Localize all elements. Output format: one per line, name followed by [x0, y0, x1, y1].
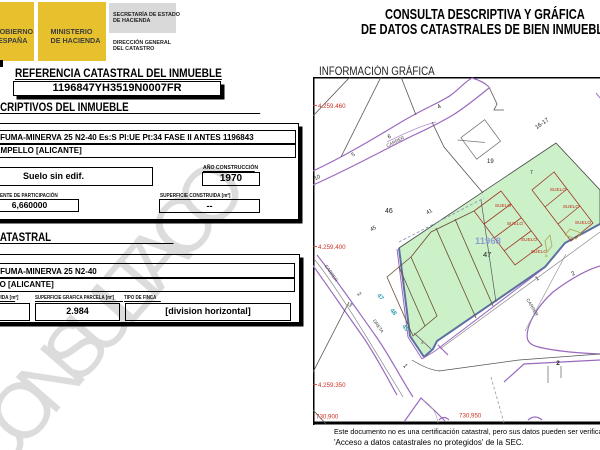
svg-text:47: 47 [483, 250, 491, 259]
svg-text:4.259.350: 4.259.350 [318, 382, 346, 389]
svg-text:730,950: 730,950 [459, 413, 482, 420]
svg-text:19: 19 [487, 159, 494, 165]
svg-text:SUELO: SUELO [575, 220, 592, 226]
svg-text:SUELO: SUELO [495, 203, 512, 209]
svg-text:SUELO: SUELO [507, 221, 524, 227]
svg-text:46: 46 [385, 208, 393, 215]
svg-text:SUELO: SUELO [550, 187, 567, 193]
svg-text:11968: 11968 [475, 236, 501, 247]
svg-text:4.259.400: 4.259.400 [318, 244, 346, 251]
svg-text:SUELO: SUELO [521, 237, 538, 243]
svg-text:7: 7 [530, 170, 533, 176]
svg-text:730,900: 730,900 [316, 414, 339, 421]
svg-text:SUELO: SUELO [563, 204, 580, 210]
svg-text:2: 2 [556, 360, 560, 367]
svg-text:4.259.460: 4.259.460 [318, 103, 346, 110]
